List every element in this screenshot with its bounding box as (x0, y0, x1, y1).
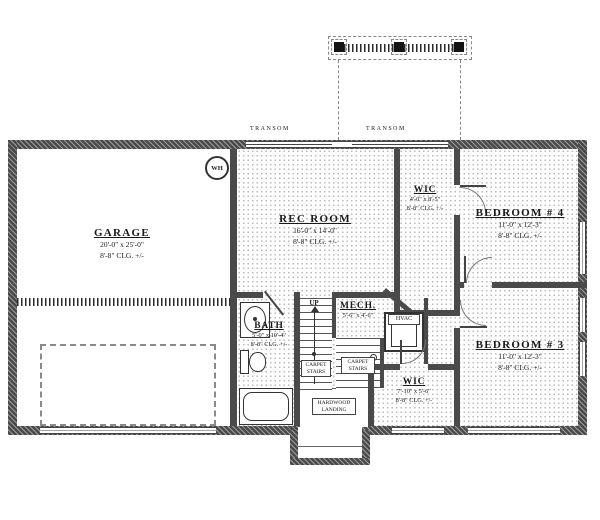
rec-room-name: REC ROOM (255, 212, 375, 226)
wic-lower-dims: 7'-10" x 5'-6" (372, 388, 456, 397)
garage-beam (17, 298, 230, 306)
wic-upper-dims: 4'-0" x 8'-5" (394, 196, 456, 205)
bedroom4-dims: 11'-0" x 12'-3" (458, 220, 582, 231)
areaway-opening (298, 427, 362, 458)
garage-label: GARAGE 20'-0" x 25'-0" 8'-8" CLG. +/- (62, 226, 182, 261)
bedroom3-label: BEDROOM # 3 11'-0" x 12'-3" 8'-8" CLG. +… (458, 338, 582, 373)
areaway-wall-bottom (290, 458, 370, 465)
bedroom3-name: BEDROOM # 3 (458, 338, 582, 352)
water-heater-label: WH (211, 165, 223, 172)
garage-name: GARAGE (62, 226, 182, 240)
deck-post (394, 42, 404, 52)
toilet-tank (240, 350, 249, 374)
wic-upper-left-wall (394, 149, 400, 316)
stairs-note-left: CARPET STAIRS (301, 360, 331, 377)
bath-dims: 5'-0" x 10'-4" (243, 332, 295, 341)
water-heater: WH (205, 156, 229, 180)
deck-drop-line (338, 60, 339, 140)
bedroom-divider-wall-b (492, 282, 587, 288)
mech-label: MECH. 5'-6" x 4'-6" (334, 300, 382, 321)
bath-name: BATH (243, 320, 295, 332)
transom-label-right: TRANSOM (366, 126, 406, 132)
garage-rec-wall (230, 149, 237, 426)
bath-top-wall (237, 292, 263, 298)
floor-plan: TRANSOM TRANSOM WH (0, 0, 600, 520)
mech-dims: 5'-6" x 4'-6" (334, 312, 382, 321)
bedroom3-door-leaf (460, 326, 487, 328)
bathtub-inner (243, 392, 289, 421)
bedroom4-clg: 8'-8" CLG. +/- (458, 231, 582, 242)
wic-upper-label: WIC 4'-0" x 8'-5" 8'-8" CLG. +/- (394, 184, 456, 214)
areaway-step-line (298, 446, 362, 447)
stairs-note-right: CARPET STAIRS (341, 357, 375, 374)
deck-post (454, 42, 464, 52)
deck-door (332, 141, 352, 148)
wic-upper-clg: 8'-8" CLG. +/- (394, 205, 456, 214)
transom-window-left (246, 141, 332, 148)
wic-lower-top-wall-b (428, 364, 460, 370)
wic-bedroom4-wall-a (454, 149, 460, 185)
wic-lower-label: WIC 7'-10" x 5'-6" 8'-8" CLG. +/- (372, 376, 456, 406)
exterior-wall-left (8, 140, 17, 435)
garage-clg: 8'-8" CLG. +/- (62, 251, 182, 262)
mech-hall-wall (424, 298, 428, 364)
landing-note: HARDWOOD LANDING (312, 398, 356, 415)
transom-label-left: TRANSOM (250, 126, 290, 132)
deck-post (334, 42, 344, 52)
wic-upper-name: WIC (394, 184, 456, 196)
stairs-up-label: UP (304, 299, 324, 307)
bath-right-wall (294, 292, 300, 426)
bedroom4-name: BEDROOM # 4 (458, 206, 582, 220)
wic-lower-clg: 8'-8" CLG. +/- (372, 397, 456, 406)
hvac-label: HVAC (388, 314, 420, 325)
up-text: UP (304, 299, 324, 307)
bath-label: BATH 5'-0" x 10'-4" 8'-8" CLG. +/- (243, 320, 295, 350)
rec-room-clg: 8'-8" CLG. +/- (255, 237, 375, 248)
stairs-line-dot (312, 352, 316, 356)
mech-name: MECH. (334, 300, 382, 312)
hall-bedroom3-wall-a (454, 288, 460, 298)
garage-slab-dashed-outline (40, 344, 216, 426)
deck-drop-line (460, 60, 461, 140)
bedroom3-window-bottom (468, 427, 560, 434)
bedroom3-dims: 11'-0" x 12'-3" (458, 352, 582, 363)
bedroom4-label: BEDROOM # 4 11'-0" x 12'-3" 8'-8" CLG. +… (458, 206, 582, 241)
bedroom3-clg: 8'-8" CLG. +/- (458, 363, 582, 374)
garage-door (40, 427, 216, 434)
bedroom3-window-1 (579, 298, 586, 332)
transom-window-right (352, 141, 448, 148)
toilet-bowl (249, 352, 266, 372)
rec-room-dims: 16'-0" x 14'-0" (255, 226, 375, 237)
wic-lower-name: WIC (372, 376, 456, 388)
bath-clg: 8'-8" CLG. +/- (243, 341, 295, 350)
rec-room-label: REC ROOM 16'-0" x 14'-0" 8'-8" CLG. +/- (255, 212, 375, 247)
wic-lower-window (392, 427, 444, 434)
garage-dims: 20'-0" x 25'-0" (62, 240, 182, 251)
